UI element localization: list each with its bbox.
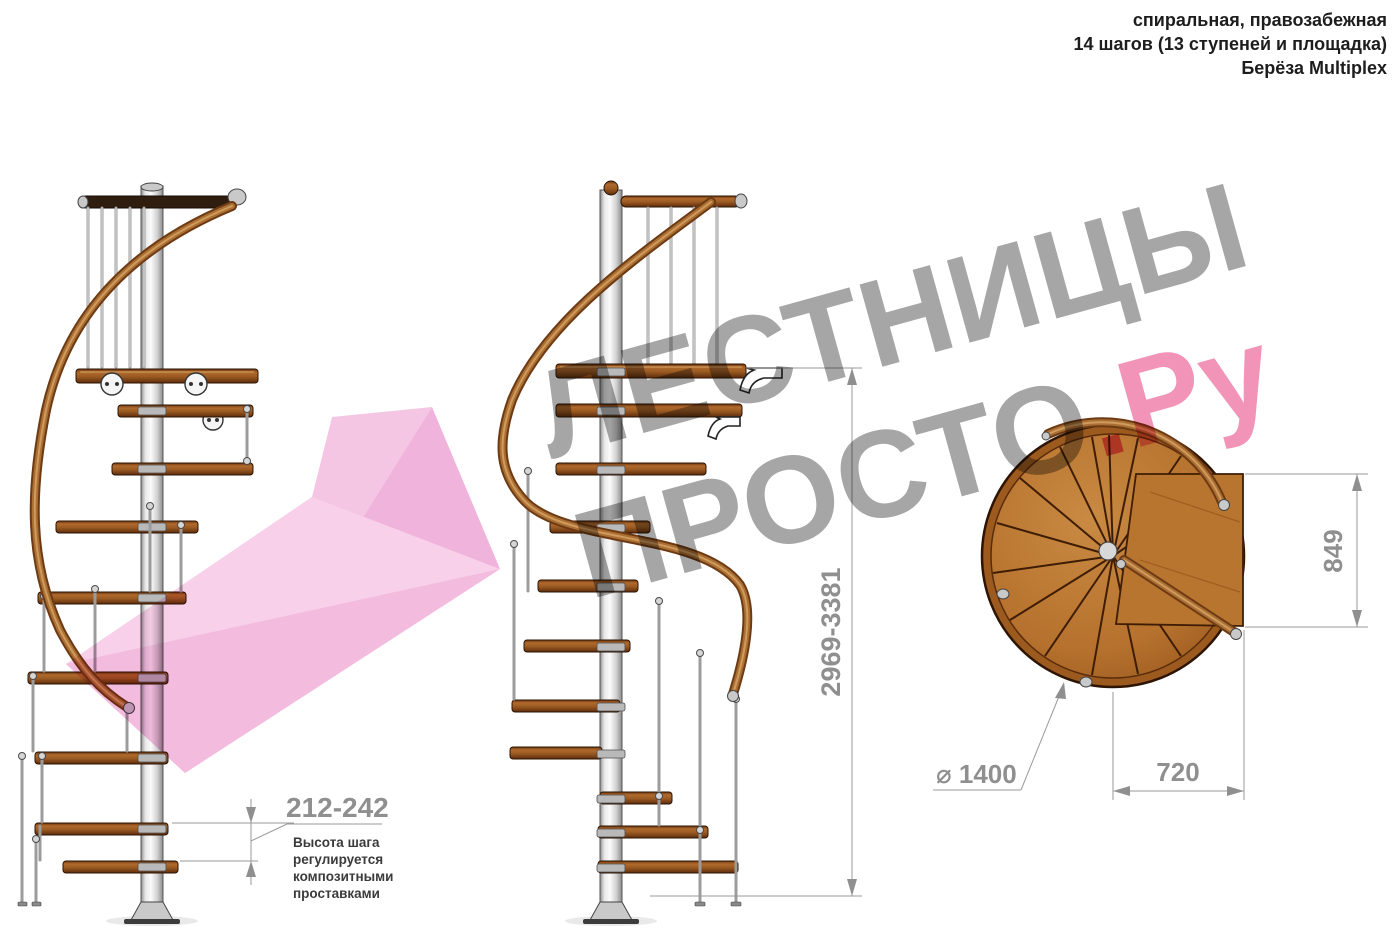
- handrail-end-cap: [78, 196, 88, 208]
- rim-connector: [997, 589, 1009, 599]
- pink-arrow-watermark: [66, 407, 500, 773]
- rail-collar: [1117, 560, 1126, 569]
- platform-depth-label: 849: [1318, 529, 1348, 572]
- handrail-end-cap: [735, 194, 747, 208]
- pole-base-flare: [590, 902, 632, 920]
- step: [556, 463, 706, 475]
- pole-top-cap: [141, 183, 163, 191]
- baluster-disc-fitting: [101, 373, 123, 395]
- platform-spindles: [648, 208, 717, 363]
- baluster-disc-fitting: [185, 373, 207, 395]
- base-plate: [124, 919, 180, 924]
- handrail-end-cap: [1219, 500, 1230, 511]
- spec-type: спиральная, правозабежная: [1074, 8, 1387, 32]
- total-height-label: 2969-3381: [816, 567, 846, 696]
- left-staircase-side-view: [18, 183, 258, 926]
- dimension-platform-depth: 849: [1245, 474, 1368, 627]
- top-guard-handrail: [80, 196, 232, 208]
- technical-drawing-canvas: 2969-3381 212-242 849 720 ⌀ 1400 Высота …: [0, 0, 1400, 938]
- note-line: проставками: [293, 886, 380, 901]
- handrail-end-cap: [728, 691, 739, 702]
- step: [510, 747, 602, 759]
- top-guard-handrail: [621, 196, 740, 207]
- spec-header: спиральная, правозабежная 14 шагов (13 с…: [1074, 8, 1387, 80]
- spec-material: Берёза Multiplex: [1074, 56, 1387, 80]
- note-line: Высота шага: [293, 835, 380, 850]
- step: [56, 521, 198, 533]
- handrail-joint: [1042, 432, 1050, 440]
- step-bracket: [708, 417, 740, 439]
- staircase-technical-drawing: 2969-3381 212-242 849 720 ⌀ 1400 Высота …: [0, 0, 1400, 938]
- platform-width-label: 720: [1156, 757, 1199, 787]
- dimension-total-height: 2969-3381: [650, 368, 862, 896]
- pole-base-flare: [131, 902, 173, 920]
- handrail-end-cap: [1231, 629, 1242, 640]
- staircase-top-view: [982, 422, 1244, 687]
- step-height-label: 212-242: [286, 792, 389, 823]
- center-staircase-side-view: [503, 181, 782, 926]
- spiral-handrail: [503, 202, 748, 702]
- center-pole-top: [1099, 542, 1117, 560]
- diameter-label: ⌀ 1400: [936, 759, 1017, 789]
- spec-steps: 14 шагов (13 ступеней и площадка): [1074, 32, 1387, 56]
- rim-connector: [1080, 677, 1092, 687]
- platform-spindle-highlights: [648, 208, 717, 363]
- step: [556, 404, 742, 417]
- note-step-height: Высота шага регулируется композитными пр…: [293, 835, 393, 901]
- platform-board: [556, 364, 746, 378]
- dimension-diameter: ⌀ 1400: [933, 682, 1066, 790]
- note-line: композитными: [293, 869, 393, 884]
- base-plate: [583, 919, 639, 924]
- note-line: регулируется: [293, 852, 383, 867]
- step: [112, 463, 253, 475]
- pole-top-knob: [604, 181, 618, 195]
